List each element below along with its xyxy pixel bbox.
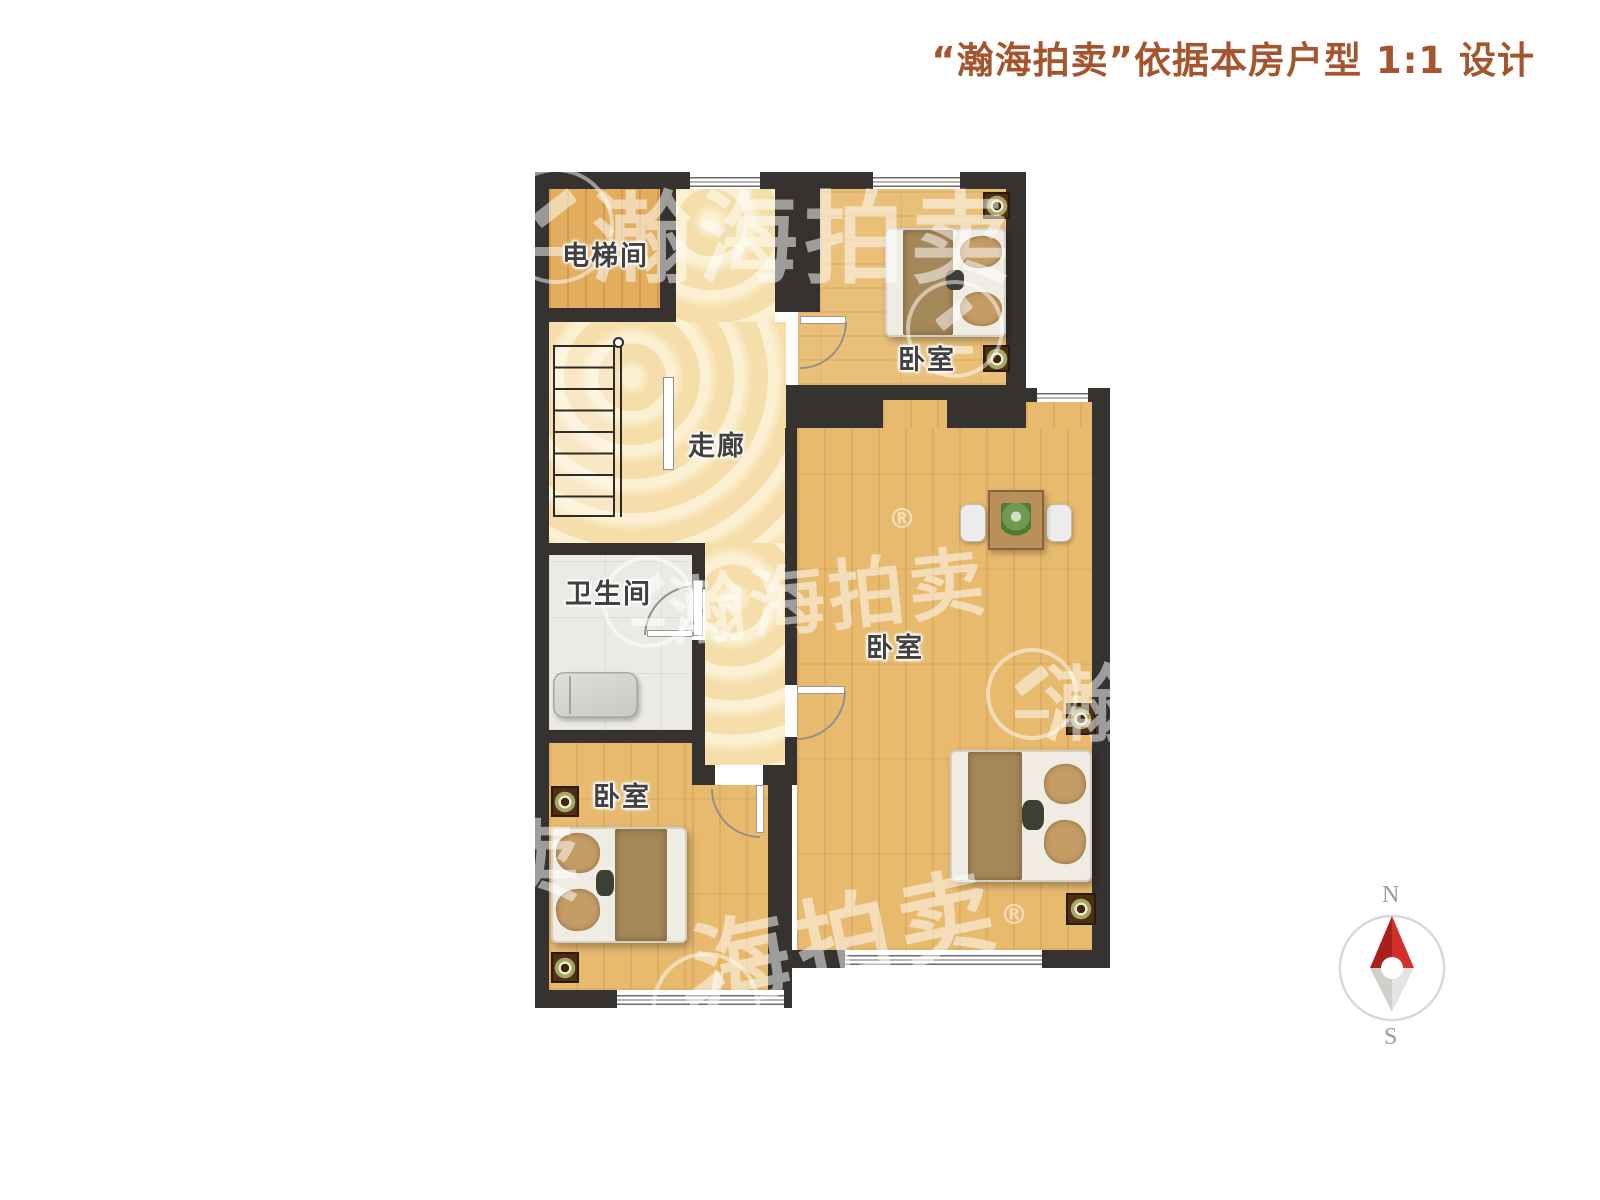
bed-pillow: [1043, 763, 1088, 806]
lamp: [986, 348, 1008, 370]
bed-bedroom-top: [885, 228, 1006, 337]
nightstand: [983, 192, 1010, 219]
wall-bedroombottom-top-a: [705, 765, 715, 785]
door-leaf-bedroom-bottom: [756, 785, 764, 833]
bed-pillow: [959, 234, 1004, 270]
corridor-pillar: [663, 377, 674, 470]
bed-blanket: [615, 829, 667, 941]
door-opening-bedroom-bottom: [715, 765, 763, 785]
stair-rail-knob: [613, 337, 624, 348]
bed-blanket: [968, 752, 1022, 880]
nightstand: [551, 952, 579, 983]
staircase: [553, 345, 615, 517]
wall-bedroombottom-bottom-a: [535, 990, 617, 1008]
bed-bedroom-main: [950, 750, 1092, 882]
door-leaf-bathroom-open: [647, 630, 693, 637]
door-opening-bedroom-main: [785, 685, 797, 737]
page-title: “瀚海拍卖”依据本房户型 1:1 设计: [931, 30, 1535, 84]
lamp: [1070, 898, 1092, 920]
wall-bathroom-right-lower: [692, 640, 705, 743]
lamp: [554, 791, 576, 813]
bed-pillow: [554, 887, 601, 933]
wall-bedroommain-top-left: [786, 400, 883, 428]
wall-bedroom-divider: [768, 785, 792, 1008]
floorplan-page: “瀚海拍卖”依据本房户型 1:1 设计: [0, 0, 1600, 1200]
compass-south-label: S: [1384, 1024, 1397, 1051]
bed-pillow: [555, 832, 602, 875]
bed-pillow: [959, 291, 1003, 328]
nightstand: [1066, 703, 1096, 735]
compass-north-label: N: [1382, 882, 1399, 909]
wall-outer-left: [535, 172, 549, 1008]
wall-bedroombottom-top-b: [763, 765, 797, 785]
label-corridor: 走廊: [688, 424, 746, 463]
label-elevator-room: 电梯间: [562, 234, 649, 273]
bed-accent-pillow: [596, 870, 614, 896]
nightstand: [551, 786, 579, 817]
wall-corridor-right-lower: [785, 737, 797, 765]
nightstand: [983, 345, 1010, 372]
door-opening-bedroom-top: [786, 315, 798, 385]
wall-bedroommain-top-right: [947, 400, 1026, 428]
wall-bedroommain-bottom-b: [1042, 950, 1110, 968]
window-bedroom-main-bottom: [845, 950, 1042, 970]
door-leaf-bathroom: [693, 580, 703, 636]
lamp: [554, 957, 576, 979]
wall-bedroommain-bottom-a: [786, 950, 845, 968]
potted-plant: [1001, 503, 1031, 537]
bed-bedroom-bottom: [551, 827, 687, 943]
floor-corridor-lower: [705, 543, 785, 765]
wall-corridor-right: [785, 428, 797, 685]
label-bedroom-top: 卧室: [898, 338, 956, 377]
label-bedroom-main: 卧室: [866, 626, 924, 665]
window-corridor-top: [690, 172, 760, 189]
chair-left: [960, 504, 986, 542]
wall-elevator-bottom: [535, 308, 676, 322]
wall-bedroombottom-bottom-b: [784, 990, 792, 1008]
wall-corridor-bedroomtop-stub: [775, 172, 820, 312]
window-bedroom-bottom: [617, 990, 784, 1008]
wall-bathroom-top: [535, 543, 705, 555]
chair-right: [1046, 504, 1072, 542]
nightstand: [1066, 893, 1096, 925]
stair-rail: [620, 345, 622, 517]
window-bedroom-top: [873, 172, 960, 189]
table: [988, 490, 1044, 550]
floor-bedroom-main-side: [1026, 402, 1092, 430]
bathtub: [553, 672, 638, 718]
floor-bedroom-main-notch: [883, 400, 947, 430]
compass: N S: [1312, 866, 1472, 1066]
wall-outer-right: [1092, 388, 1110, 968]
label-bedroom-bottom: 卧室: [593, 775, 651, 814]
bed-pillow: [1042, 818, 1088, 865]
window-bedroom-main-top: [1037, 388, 1088, 402]
door-leaf-bedroom-top: [800, 316, 846, 324]
lamp: [986, 195, 1008, 217]
label-bathroom: 卫生间: [565, 572, 652, 611]
wall-bathroom-bottom: [535, 730, 705, 743]
wall-elevator-right: [660, 172, 676, 322]
door-leaf-bedroom-main: [797, 686, 845, 694]
bed-accent-pillow: [946, 270, 964, 290]
wall-connector: [692, 743, 705, 785]
wall-bedroomtop-bottom: [786, 385, 1026, 400]
floor-corridor-top: [676, 189, 775, 322]
bed-accent-pillow: [1022, 800, 1044, 830]
wall-step-a: [1026, 388, 1037, 402]
lamp: [1070, 708, 1092, 730]
